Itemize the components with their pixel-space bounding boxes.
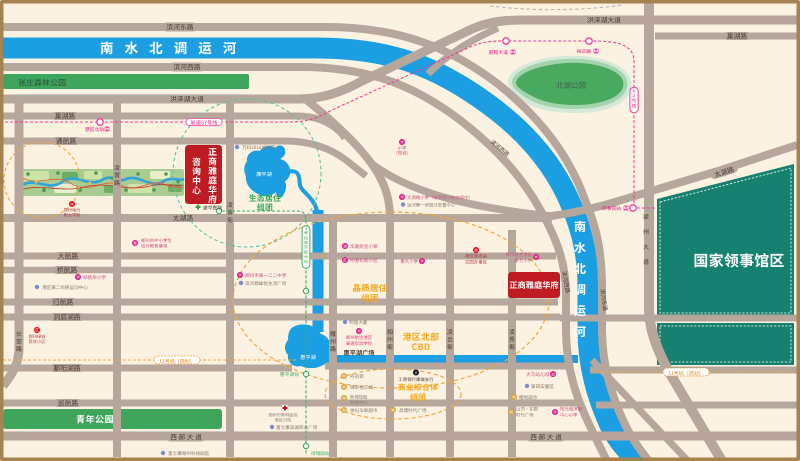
svg-text:惠平湖广场: 惠平湖广场 [344, 348, 375, 357]
svg-text:西 郝 大 道: 西 郝 大 道 [170, 431, 202, 441]
svg-text:鄱阳湖路: 鄱阳湖路 [53, 362, 80, 372]
svg-text:咨询中心: 咨询中心 [192, 155, 201, 197]
svg-text:第九小学: 第九小学 [400, 259, 418, 265]
svg-text:学: 学 [76, 274, 80, 280]
svg-text:大航路: 大航路 [58, 250, 79, 260]
svg-text:南 水 北 调 运 河: 南 水 北 调 运 河 [100, 37, 240, 57]
svg-text:郑航东小学: 郑航东小学 [83, 275, 106, 281]
svg-text:购: 购 [512, 394, 516, 400]
svg-text:学: 学 [238, 272, 242, 278]
svg-text:昌建时代广场: 昌建时代广场 [399, 408, 427, 414]
svg-text:第七小学: 第七小学 [514, 258, 532, 264]
svg-text:校: 校 [70, 201, 74, 207]
svg-text:通航路: 通航路 [56, 135, 77, 145]
svg-text:雁州路: 雁州路 [330, 329, 336, 353]
svg-text:领事馆站: 领事馆站 [602, 205, 621, 212]
svg-text:组团: 组团 [410, 392, 426, 403]
svg-text:祥云路: 祥云路 [577, 48, 592, 55]
svg-text:正商雅庭华府: 正商雅庭华府 [208, 145, 217, 206]
svg-text:康平湖: 康平湖 [256, 171, 272, 178]
svg-text:惠平湖: 惠平湖 [300, 354, 316, 361]
svg-text:港区分院: 港区分院 [275, 418, 293, 424]
svg-text:校外教育基地: 校外教育基地 [141, 244, 168, 250]
svg-text:学: 学 [534, 254, 538, 260]
svg-text:区: 区 [35, 328, 39, 333]
svg-text:组团: 组团 [361, 292, 379, 304]
svg-text:购: 购 [342, 395, 346, 401]
svg-text:凌霄路: 凌霄路 [114, 163, 120, 187]
svg-text:归航路: 归航路 [53, 296, 74, 306]
svg-text:华夏航空小镇: 华夏航空小镇 [350, 244, 378, 250]
svg-text:港区北站: 港区北站 [85, 126, 104, 133]
svg-text:运河第一侨回迁安置中心: 运河第一侨回迁安置中心 [407, 203, 456, 209]
svg-text:CBD: CBD [412, 340, 431, 353]
svg-text:轨道S7号线: 轨道S7号线 [191, 119, 218, 126]
svg-text:学: 学 [400, 194, 404, 200]
svg-text:大马幼儿园: 大马幼儿园 [526, 372, 549, 378]
svg-text:高速实验学校: 高速实验学校 [346, 341, 373, 347]
svg-text:桥航路: 桥航路 [57, 264, 78, 274]
svg-text:锦荣悦汇城: 锦荣悦汇城 [350, 385, 373, 391]
svg-text:凌波街: 凌波街 [227, 200, 233, 224]
svg-text:巢湖路: 巢湖路 [55, 110, 76, 120]
svg-text:幼: 幼 [551, 371, 555, 377]
svg-text:长安路: 长安路 [16, 329, 22, 353]
svg-text:郑州市第一二二中学: 郑州市第一二二中学 [245, 273, 287, 279]
svg-text:11号线（规划）: 11号线（规划） [159, 358, 195, 365]
svg-text:樱悦超市: 樱悦超市 [519, 395, 538, 401]
svg-text:购: 购 [342, 384, 346, 390]
svg-text:明理大厦: 明理大厦 [349, 320, 368, 326]
svg-text:购: 购 [509, 409, 513, 415]
svg-text:国家领事馆区: 国家领事馆区 [693, 250, 784, 271]
svg-text:康华医院: 康华医院 [203, 205, 222, 212]
svg-text:镇: 镇 [343, 243, 347, 249]
svg-text:教: 教 [133, 240, 137, 246]
svg-text:洪泽湖大道: 洪泽湖大道 [170, 93, 204, 103]
svg-text:学: 学 [420, 258, 424, 264]
svg-text:百合小区: 百合小区 [29, 339, 46, 345]
svg-text:巢湖路: 巢湖路 [727, 30, 748, 40]
svg-text:工商银行康城支行: 工商银行康城支行 [398, 377, 434, 383]
svg-text:¥: ¥ [415, 371, 417, 376]
svg-text:正商雅庭华府: 正商雅庭华府 [509, 279, 558, 291]
svg-text:吾悦中心: 吾悦中心 [350, 400, 368, 406]
svg-text:万科2016城项目: 万科2016城项目 [242, 145, 275, 151]
svg-text:世纪华联超市: 世纪华联超市 [350, 408, 378, 414]
svg-text:中心小学: 中心小学 [560, 413, 578, 419]
svg-text:富士康滨湖商业广场: 富士康滨湖商业广场 [276, 425, 318, 431]
svg-text:购: 购 [391, 407, 395, 413]
svg-text:政: 政 [474, 247, 478, 253]
svg-text:明港花苑小区: 明港花苑小区 [350, 258, 378, 264]
svg-text:西 郝 大 道: 西 郝 大 道 [530, 431, 562, 441]
svg-text:惠平湖站: 惠平湖站 [280, 371, 299, 378]
svg-text:凌云街: 凌云街 [447, 327, 453, 351]
svg-text:职业学院: 职业学院 [64, 213, 82, 219]
svg-text:购: 购 [342, 373, 346, 379]
svg-text:青年公园: 青年公园 [76, 413, 114, 426]
svg-text:区: 区 [343, 258, 347, 263]
svg-text:前程大道: 前程大道 [489, 49, 508, 56]
svg-text:组团: 组团 [257, 202, 273, 213]
svg-text:北湖公园: 北湖公园 [556, 80, 586, 91]
svg-text:相州街: 相州街 [387, 327, 393, 351]
svg-text:滨河郡峰悦生活广场: 滨河郡峰悦生活广场 [245, 281, 287, 287]
svg-text:富士康郑州科技园区: 富士康郑州科技园区 [168, 451, 210, 457]
svg-text:绿博园站: 绿博园站 [311, 451, 330, 457]
svg-text:（规划）: （规划） [393, 151, 411, 157]
svg-text:11号线（规划）: 11号线（规划） [668, 370, 704, 377]
svg-text:洪泽湖大道: 洪泽湖大道 [587, 14, 621, 24]
svg-text:学: 学 [357, 328, 361, 334]
svg-text:滨河东路: 滨河东路 [166, 21, 193, 31]
svg-text:学: 学 [553, 409, 557, 415]
svg-text:第四安置区: 第四安置区 [531, 384, 554, 390]
svg-text:丹尼斯: 丹尼斯 [350, 374, 364, 380]
svg-text:港区第二市民运动中心: 港区第二市民运动中心 [42, 285, 88, 291]
svg-text:购: 购 [342, 407, 346, 413]
svg-text:文园办事处: 文园办事处 [465, 260, 488, 266]
svg-text:张庄森林公园: 张庄森林公园 [18, 78, 66, 89]
svg-text:滨河西路: 滨河西路 [173, 61, 200, 71]
svg-text:洞庭湖路: 洞庭湖路 [53, 311, 80, 321]
svg-text:巡航路: 巡航路 [58, 397, 79, 407]
svg-text:学: 学 [400, 139, 404, 145]
svg-text:太湖路小学（省实验分校立项中）: 太湖路小学（省实验分校立项中） [407, 195, 473, 201]
svg-text:时代广场: 时代广场 [516, 413, 534, 419]
svg-text:凌秀街: 凌秀街 [509, 327, 515, 351]
